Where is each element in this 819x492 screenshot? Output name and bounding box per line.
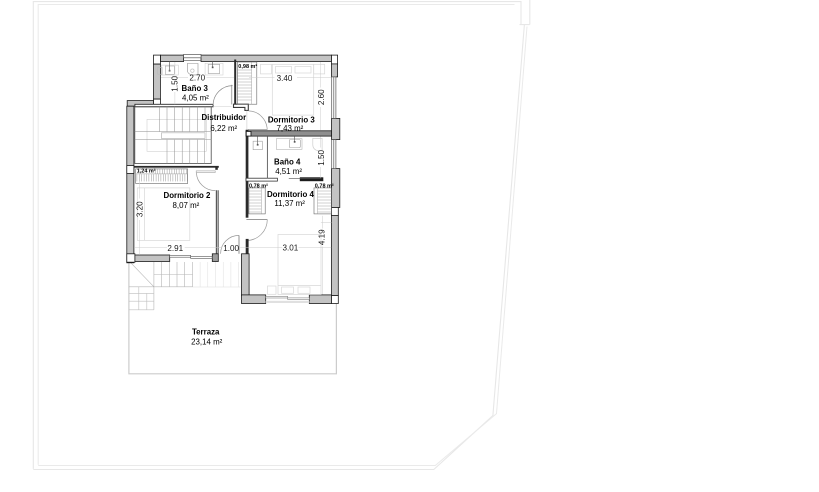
svg-text:4,51 m²: 4,51 m² bbox=[275, 167, 302, 176]
svg-text:Terraza: Terraza bbox=[192, 327, 220, 336]
svg-text:4.19: 4.19 bbox=[317, 229, 326, 245]
svg-text:4,05 m²: 4,05 m² bbox=[182, 94, 209, 103]
svg-text:11,37 m²: 11,37 m² bbox=[274, 199, 305, 208]
svg-text:2.91: 2.91 bbox=[167, 244, 183, 253]
svg-text:23,14 m²: 23,14 m² bbox=[191, 337, 223, 346]
svg-text:0,78 m²: 0,78 m² bbox=[249, 182, 268, 189]
svg-text:Dormitorio 4: Dormitorio 4 bbox=[267, 190, 315, 199]
svg-text:2.70: 2.70 bbox=[189, 74, 205, 83]
svg-text:3.40: 3.40 bbox=[277, 74, 293, 83]
svg-text:Baño 3: Baño 3 bbox=[182, 84, 209, 93]
svg-text:6,22 m²: 6,22 m² bbox=[210, 124, 237, 133]
svg-text:3.20: 3.20 bbox=[136, 201, 145, 217]
svg-text:1.00: 1.00 bbox=[223, 244, 239, 253]
svg-text:Baño 4: Baño 4 bbox=[274, 158, 301, 167]
svg-text:1.50: 1.50 bbox=[317, 150, 326, 166]
svg-text:0,98 m²: 0,98 m² bbox=[238, 63, 257, 70]
svg-text:3.01: 3.01 bbox=[283, 244, 299, 253]
svg-text:1.50: 1.50 bbox=[171, 75, 180, 91]
svg-text:7,43 m²: 7,43 m² bbox=[277, 124, 304, 133]
svg-text:2.60: 2.60 bbox=[317, 89, 326, 105]
svg-text:Dormitorio 2: Dormitorio 2 bbox=[164, 191, 212, 200]
svg-text:0,78 m²: 0,78 m² bbox=[315, 182, 334, 189]
svg-text:8,07 m²: 8,07 m² bbox=[173, 201, 200, 210]
svg-text:Distribuidor: Distribuidor bbox=[201, 113, 246, 122]
